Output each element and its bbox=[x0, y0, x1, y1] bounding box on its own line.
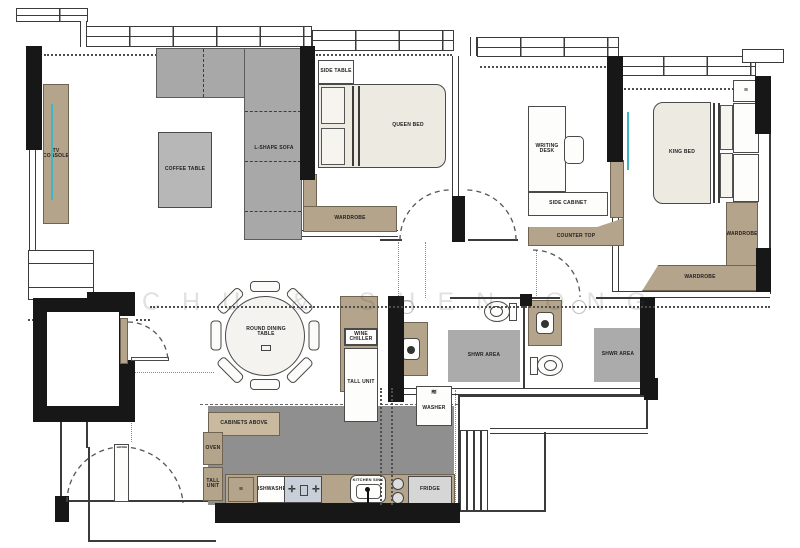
dotted-line bbox=[455, 390, 456, 508]
corridor-edge bbox=[490, 428, 648, 434]
dotted-line bbox=[480, 66, 606, 68]
yard-line bbox=[458, 510, 546, 512]
dotted-line bbox=[425, 242, 426, 298]
pillow bbox=[321, 128, 345, 165]
wardrobe-master-bottom: WARDROBE bbox=[642, 265, 758, 291]
coffee-table-label: COFFEE TABLE bbox=[159, 133, 211, 207]
exterior-line bbox=[88, 540, 216, 542]
door-threshold bbox=[380, 239, 402, 241]
sofa-label: L-SHAPE SOFA bbox=[249, 139, 299, 159]
door-arc-entry-right bbox=[122, 447, 183, 503]
coffee-table: COFFEE TABLE bbox=[158, 132, 212, 208]
wall-line bbox=[60, 420, 62, 500]
king-bed: KING BED bbox=[653, 102, 711, 204]
side-cabinet: SIDE CABINET bbox=[528, 192, 608, 216]
door-arc-study bbox=[466, 190, 516, 240]
shelter-shelf bbox=[131, 357, 169, 361]
queen-bed-label: QUEEN BED bbox=[369, 85, 447, 167]
dining-table: ROUND DINING TABLE bbox=[225, 296, 305, 376]
wine-chiller-label: WINE CHILLER bbox=[346, 330, 376, 344]
king-bed-label: KING BED bbox=[654, 103, 710, 203]
dotted-line bbox=[536, 250, 537, 296]
tv-console: TV CONSOLE bbox=[43, 84, 69, 224]
window-return-master bbox=[742, 49, 784, 63]
dishwasher-label: DISHWASHER bbox=[258, 477, 286, 502]
dotted-line bbox=[128, 372, 214, 373]
study-counter-label: COUNTER TOP bbox=[529, 228, 623, 246]
tall-unit: TALL UNIT bbox=[344, 348, 378, 422]
dining-table-label: ROUND DINING TABLE bbox=[240, 319, 292, 345]
wall-segment bbox=[26, 46, 42, 150]
study-counter: COUNTER TOP bbox=[528, 218, 624, 246]
ledge-line bbox=[29, 263, 93, 264]
wall-segment bbox=[755, 76, 771, 134]
oven-tower: OVEN bbox=[203, 432, 223, 465]
table-centerpiece bbox=[261, 345, 271, 351]
dishwasher: DISHWASHER bbox=[257, 476, 287, 503]
wall-segment bbox=[388, 296, 404, 402]
tall-unit-kitchen-label: TALL UNIT bbox=[204, 468, 222, 500]
wardrobe-label: WARDROBE bbox=[727, 203, 757, 267]
sofa-seam bbox=[245, 211, 301, 212]
shower-common-label: SHWR AREA bbox=[448, 330, 520, 382]
floor-plan: TV CONSOLE L-SHAPE SOFA COFFEE TABLE SID… bbox=[0, 0, 800, 548]
corridor-line bbox=[458, 395, 460, 433]
wall-segment bbox=[55, 496, 69, 522]
door-jamb-wall bbox=[452, 196, 465, 242]
bed-fold-line bbox=[352, 86, 354, 166]
tall-unit-kitchen: TALL UNIT bbox=[203, 467, 223, 501]
writing-desk: WRITING DESK bbox=[528, 106, 566, 192]
desk-chair bbox=[564, 136, 584, 164]
gas-hob: ✛ ✛ bbox=[284, 476, 322, 503]
basin-drain bbox=[541, 320, 549, 328]
dining-chair bbox=[250, 281, 280, 292]
wardrobe-label: WARDROBE bbox=[643, 266, 757, 290]
basin-drain bbox=[407, 346, 415, 354]
tv-console-label: TV CONSOLE bbox=[44, 85, 68, 223]
wall-segment bbox=[756, 248, 771, 292]
pillow bbox=[321, 87, 345, 124]
counter-return bbox=[610, 160, 624, 218]
pillow bbox=[720, 105, 733, 150]
window-band-top-left bbox=[16, 8, 88, 22]
bedside-table: SIDE TABLE bbox=[318, 60, 354, 84]
wine-chiller: WINE CHILLER bbox=[344, 328, 378, 346]
wall-bottom bbox=[215, 503, 460, 523]
dotted-line bbox=[398, 242, 399, 298]
drawer-unit: ≡ bbox=[228, 477, 254, 502]
shower-master: SHWR AREA bbox=[594, 328, 642, 382]
bed-fold-line bbox=[358, 86, 360, 166]
ledge-line bbox=[29, 287, 93, 288]
side-cabinet-label: SIDE CABINET bbox=[529, 193, 607, 215]
washer-label: WASHER bbox=[417, 403, 451, 415]
wardrobe-label: WARDROBE bbox=[304, 207, 396, 231]
entry-door-leaf bbox=[114, 444, 129, 502]
wall-segment bbox=[644, 378, 658, 400]
entry-threshold bbox=[69, 500, 117, 502]
yard-line bbox=[544, 432, 546, 510]
hob-control bbox=[300, 485, 308, 496]
dotted-line bbox=[316, 54, 452, 56]
door-arc-master bbox=[533, 250, 580, 297]
fridge-label: FRIDGE bbox=[409, 477, 451, 503]
shelter-door-leaf bbox=[120, 318, 128, 364]
window-band-study bbox=[477, 37, 619, 57]
service-yard-louver bbox=[458, 430, 488, 512]
dining-chair bbox=[309, 321, 320, 351]
dotted-line bbox=[391, 388, 393, 505]
window-band-master bbox=[620, 56, 756, 76]
wall-connector bbox=[470, 37, 477, 56]
drawer-glyph: ≡ bbox=[229, 478, 253, 501]
shower-master-label: SHWR AREA bbox=[594, 328, 642, 382]
door-arc-bedroom2 bbox=[400, 190, 450, 240]
bedside-cabinet bbox=[733, 154, 759, 202]
toilet-seat bbox=[544, 360, 557, 371]
burner-round bbox=[392, 478, 404, 490]
washer-glyph: ≋ bbox=[417, 389, 451, 397]
wall-line bbox=[86, 420, 88, 448]
sofa-seam bbox=[245, 111, 301, 112]
wall-segment bbox=[300, 46, 315, 180]
wardrobe-bedroom2: WARDROBE bbox=[303, 206, 397, 232]
bay-window-ledge bbox=[28, 250, 94, 300]
wardrobe-master-side: WARDROBE bbox=[726, 202, 758, 268]
dotted-line-main bbox=[150, 306, 770, 308]
tv-panel-line bbox=[51, 104, 53, 200]
fridge: FRIDGE bbox=[408, 476, 452, 504]
sofa-seam bbox=[203, 49, 204, 97]
tall-unit-label: TALL UNIT bbox=[345, 375, 377, 391]
mirror-line bbox=[627, 112, 629, 170]
window-band-living bbox=[86, 26, 312, 47]
burner-icon: ✛ bbox=[310, 483, 322, 497]
corridor-line bbox=[458, 395, 648, 397]
household-shelter-interior bbox=[47, 312, 119, 406]
exterior-line bbox=[88, 447, 90, 542]
sofa-seam bbox=[245, 161, 301, 162]
bedside-table-label: SIDE TABLE bbox=[319, 61, 353, 83]
sofa-vertical: L-SHAPE SOFA bbox=[244, 48, 302, 240]
dining-chair bbox=[211, 321, 222, 351]
wall-bath-divider bbox=[523, 298, 525, 392]
door-pivot-wall bbox=[520, 294, 532, 306]
wall-segment bbox=[29, 150, 36, 252]
dotted-line bbox=[380, 388, 382, 505]
wall-bath-top bbox=[450, 297, 560, 299]
window-band-bedroom2 bbox=[312, 30, 454, 51]
pillow bbox=[720, 153, 733, 198]
bed-fold-line bbox=[713, 103, 715, 203]
burner-icon: ✛ bbox=[286, 483, 298, 497]
door-threshold bbox=[468, 239, 518, 241]
washer: ≋ WASHER bbox=[416, 386, 452, 426]
wall-bedroom2-study bbox=[452, 56, 459, 196]
oven-label: OVEN bbox=[204, 433, 222, 464]
shower-common: SHWR AREA bbox=[448, 330, 520, 382]
writing-desk-label: WRITING DESK bbox=[529, 107, 565, 191]
wall-segment bbox=[607, 56, 623, 162]
dining-chair bbox=[250, 379, 280, 390]
